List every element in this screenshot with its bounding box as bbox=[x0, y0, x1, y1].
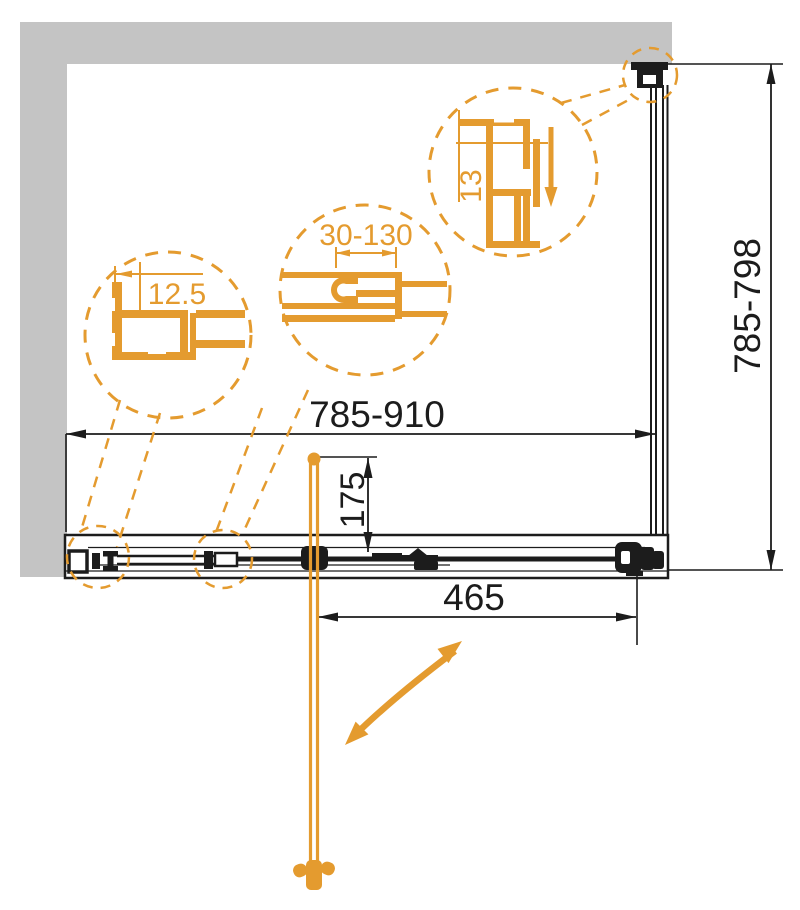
arrowhead-right-icon bbox=[616, 613, 636, 622]
arrowhead-up-icon bbox=[767, 64, 776, 84]
diagram-svg: 785-910 785-798 175 465 bbox=[0, 0, 800, 910]
detail-wall-profile: 12.5 bbox=[110, 262, 245, 360]
door-swing-arrow-icon bbox=[345, 641, 462, 745]
overall-width-label: 785-910 bbox=[309, 394, 445, 435]
door-handle bbox=[291, 453, 336, 891]
handle-offset-label: 175 bbox=[334, 472, 372, 529]
wall-profile-section bbox=[69, 551, 87, 572]
arrowhead-left-icon bbox=[66, 430, 86, 439]
arrowhead-down-icon bbox=[767, 550, 776, 570]
overall-height-label: 785-798 bbox=[727, 238, 768, 374]
arrowhead-left-icon bbox=[116, 271, 132, 278]
wall-profile-width-label: 12.5 bbox=[148, 278, 206, 311]
door-width-label: 465 bbox=[443, 577, 505, 618]
arrowhead-left-icon bbox=[318, 613, 338, 622]
handle-knob bbox=[291, 860, 336, 890]
clamp-section bbox=[331, 277, 358, 303]
shower-door-dimension-diagram: 785-910 785-798 175 465 bbox=[0, 0, 800, 910]
top-corner-bracket bbox=[631, 62, 668, 88]
detail-adjustment-profile: 30-130 bbox=[282, 219, 447, 322]
detail-circle-wall-profile bbox=[85, 252, 251, 418]
handle-mount bbox=[301, 546, 328, 570]
detail-top-profile: 13 bbox=[455, 110, 558, 248]
adjustment-range-label: 30-130 bbox=[319, 219, 412, 252]
dimension-overall-height: 785-798 bbox=[668, 64, 783, 570]
side-panel-glass bbox=[651, 85, 668, 535]
profile-depth-label: 13 bbox=[455, 169, 488, 202]
slide-direction-arrow-icon bbox=[545, 127, 558, 207]
